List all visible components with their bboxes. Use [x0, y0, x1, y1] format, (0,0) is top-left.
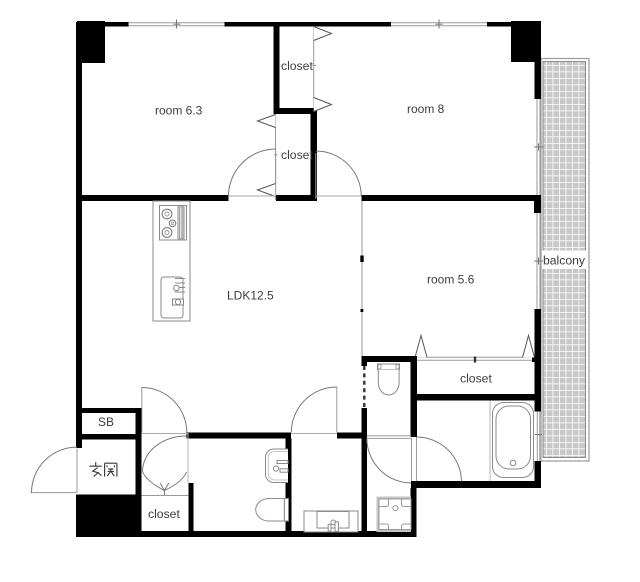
svg-text:closet: closet [148, 507, 180, 521]
svg-text:room 8: room 8 [407, 102, 445, 116]
svg-text:LDK12.5: LDK12.5 [227, 289, 274, 303]
svg-text:room 5.6: room 5.6 [427, 273, 475, 287]
svg-text:SB: SB [98, 415, 114, 429]
svg-text:closet: closet [460, 372, 492, 386]
svg-text:closet: closet [281, 59, 313, 73]
svg-text:closet: closet [281, 148, 313, 162]
svg-text:balcony: balcony [543, 254, 586, 268]
svg-text:room 6.3: room 6.3 [155, 104, 203, 118]
